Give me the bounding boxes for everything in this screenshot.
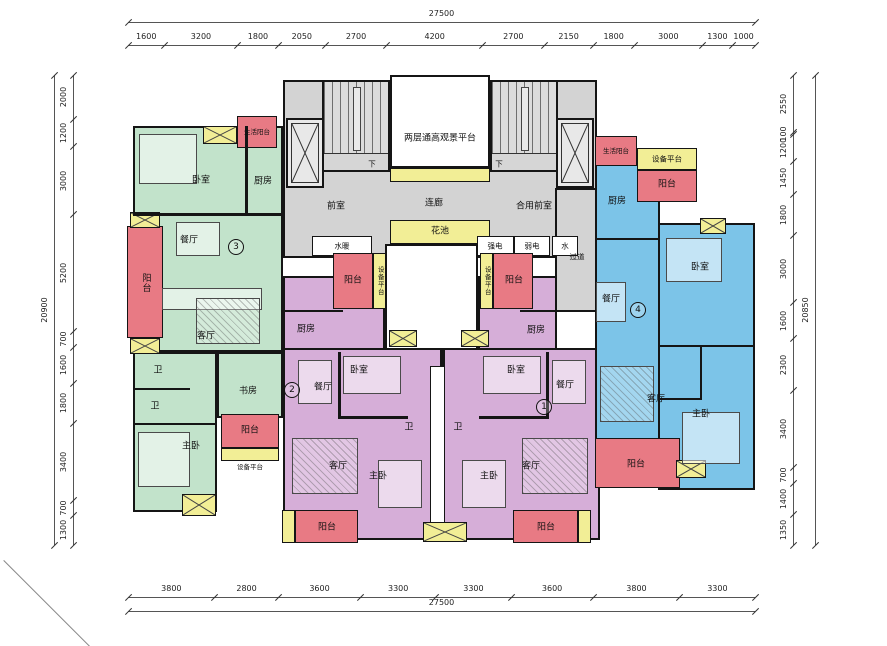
room-label-dining: 餐厅 <box>180 237 198 246</box>
dim-label: 700 <box>60 332 68 347</box>
dim-label: 2000 <box>60 87 68 107</box>
dim-label: 2300 <box>780 354 788 374</box>
dim-label: 1350 <box>780 520 788 540</box>
stair-down-label: 下 <box>368 160 376 168</box>
room-label-living: 客厅 <box>647 396 665 405</box>
dim-label: 2150 <box>558 33 578 41</box>
room-label-master: 主卧 <box>369 473 387 482</box>
bed <box>378 460 422 508</box>
room-label-bedroom: 卧室 <box>350 367 368 376</box>
passage-label: 过道 <box>570 253 585 261</box>
dim-label: 1800 <box>248 33 268 41</box>
unit1-number: 1 <box>536 399 552 415</box>
room-label-equipment: 设备平台 <box>377 266 384 296</box>
dim-line <box>54 75 55 545</box>
room-label-equipment: 设备平台 <box>237 464 263 471</box>
equipment-box <box>423 522 467 542</box>
dim-label: 1600 <box>136 33 156 41</box>
room-label-balcony: 阳台 <box>344 277 362 286</box>
bed <box>462 460 506 508</box>
dim-line <box>793 75 794 545</box>
dim-label: 3800 <box>626 585 646 593</box>
dim-line <box>128 611 755 612</box>
dim-label: 1450 <box>780 168 788 188</box>
dim-label: 1000 <box>733 33 753 41</box>
dim-label: 3300 <box>463 585 483 593</box>
unit4-number: 4 <box>630 302 646 318</box>
dim-label: 27500 <box>429 10 454 18</box>
dim-label: 2700 <box>346 33 366 41</box>
equipment-box <box>700 218 726 234</box>
strong-electric-label: 强电 <box>488 242 503 250</box>
room-label-balcony: 阳台 <box>241 427 259 436</box>
room-label-study: 书房 <box>239 388 257 397</box>
room-label-life-balcony: 生活阳台 <box>244 129 270 136</box>
room-label-master: 主卧 <box>182 443 200 452</box>
equipment-box <box>282 510 295 543</box>
dim-label: 1300 <box>60 520 68 540</box>
room-label-equipment: 设备平台 <box>652 155 682 163</box>
dim-line <box>128 45 755 46</box>
room-label-bedroom: 卧室 <box>691 264 709 273</box>
room-label-bedroom: 卧室 <box>507 367 525 376</box>
dim-label: 700 <box>780 467 788 482</box>
room-label-life-balcony: 生活阳台 <box>603 148 629 155</box>
dim-label: 3300 <box>707 585 727 593</box>
dim-label: 20900 <box>41 297 49 322</box>
room-label-balcony: 阳台 <box>627 461 645 470</box>
dim-label: 3000 <box>60 171 68 191</box>
dim-line <box>128 22 755 23</box>
room-label-dining: 餐厅 <box>602 296 620 305</box>
room-label-balcony: 阳台 <box>537 524 555 533</box>
room-label-master: 主卧 <box>692 411 710 420</box>
front-room-label: 前室 <box>327 203 345 212</box>
dim-label: 1800 <box>603 33 623 41</box>
room-label-living: 客厅 <box>522 463 540 472</box>
room-label-kitchen: 厨房 <box>527 327 545 336</box>
light-well <box>430 366 445 540</box>
room-label-balcony: 阳台 <box>318 524 336 533</box>
room-label-master: 主卧 <box>480 473 498 482</box>
dim-label: 1800 <box>780 205 788 225</box>
dim-label: 3800 <box>161 585 181 593</box>
room-label-bath: 卫 <box>150 403 159 412</box>
bed <box>682 412 740 464</box>
rug <box>292 438 358 494</box>
bed <box>138 432 190 487</box>
dim-label: 1400 <box>780 489 788 509</box>
view-platform-label: 两层通高观景平台 <box>404 135 476 144</box>
dim-label: 3200 <box>191 33 211 41</box>
dim-label: 3300 <box>388 585 408 593</box>
dim-label: 700 <box>60 500 68 515</box>
dim-label: 20850 <box>802 297 810 322</box>
bed <box>666 238 722 282</box>
dim-label: 2550 <box>780 94 788 114</box>
dim-label: 2700 <box>503 33 523 41</box>
dim-line <box>815 75 816 545</box>
room-label-living: 客厅 <box>329 463 347 472</box>
dim-label: 2050 <box>292 33 312 41</box>
stair-down-label: 下 <box>495 160 503 168</box>
dim-label: 5200 <box>60 263 68 283</box>
corridor-label: 连廊 <box>425 200 443 209</box>
dim-label: 3600 <box>542 585 562 593</box>
room-label-balcony: 阳台 <box>658 181 676 190</box>
room-label-balcony: 阳台 <box>505 277 523 286</box>
dim-label: 3400 <box>60 452 68 472</box>
room-label-bedroom: 卧室 <box>192 177 210 186</box>
room-label-dining: 餐厅 <box>314 384 332 393</box>
dim-label: 2800 <box>236 585 256 593</box>
dim-label: 3400 <box>780 419 788 439</box>
room-label-equipment: 设备平台 <box>484 266 491 296</box>
water-label: 水 <box>561 242 569 250</box>
rug <box>600 366 654 422</box>
bed <box>139 134 197 184</box>
room-label-balcony: 阳台 <box>141 273 150 293</box>
dim-label: 27500 <box>429 599 454 607</box>
shared-front-room-label: 合用前室 <box>516 203 552 212</box>
dim-label: 3000 <box>658 33 678 41</box>
dimension-annotations: 1600320018002050270042002700215018003000… <box>0 0 887 646</box>
unit3-number: 3 <box>228 239 244 255</box>
dim-label: 1300 <box>707 33 727 41</box>
room-label-bath: 卫 <box>404 424 413 433</box>
dim-label: 1600 <box>60 355 68 375</box>
dim-label: 3000 <box>780 259 788 279</box>
room-label-living: 客厅 <box>197 333 215 342</box>
weak-electric-label: 弱电 <box>525 242 540 250</box>
unit2-number: 2 <box>284 382 300 398</box>
dim-label: 1200 <box>780 138 788 158</box>
room-label-dining: 餐厅 <box>556 382 574 391</box>
dim-label: 3600 <box>309 585 329 593</box>
room-label-bath: 卫 <box>453 424 462 433</box>
room-label-kitchen: 厨房 <box>297 326 315 335</box>
dim-label: 1600 <box>780 311 788 331</box>
floor-plan: 两层通高观景平台 前室 连廊 合用前室 花池 水暖 强电 弱电 水 过道 下 下… <box>0 0 887 646</box>
dim-label: 4200 <box>424 33 444 41</box>
dim-label: 1200 <box>60 123 68 143</box>
room-label-bath: 卫 <box>153 367 162 376</box>
room-label-kitchen: 厨房 <box>254 178 272 187</box>
dim-label: 1800 <box>60 393 68 413</box>
room-label-kitchen: 厨房 <box>608 198 626 207</box>
water-heating-label: 水暖 <box>335 242 350 250</box>
equipment-box <box>578 510 591 543</box>
flower-bed-label: 花池 <box>431 228 449 237</box>
